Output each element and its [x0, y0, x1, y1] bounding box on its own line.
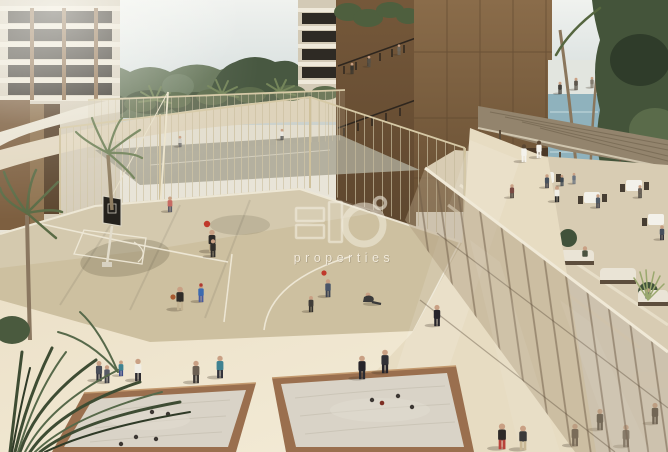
red-ball — [321, 270, 326, 275]
red-ball — [204, 221, 210, 227]
property-listing-photo: properties properties — [0, 0, 668, 452]
petanque-pit-middle — [272, 366, 474, 452]
basketball-ball — [170, 294, 175, 299]
mid-tower — [298, 0, 338, 92]
person — [582, 246, 587, 257]
red-cap — [199, 283, 202, 286]
rendered-scene: properties properties — [0, 0, 668, 452]
watermark-text: properties — [294, 251, 395, 265]
